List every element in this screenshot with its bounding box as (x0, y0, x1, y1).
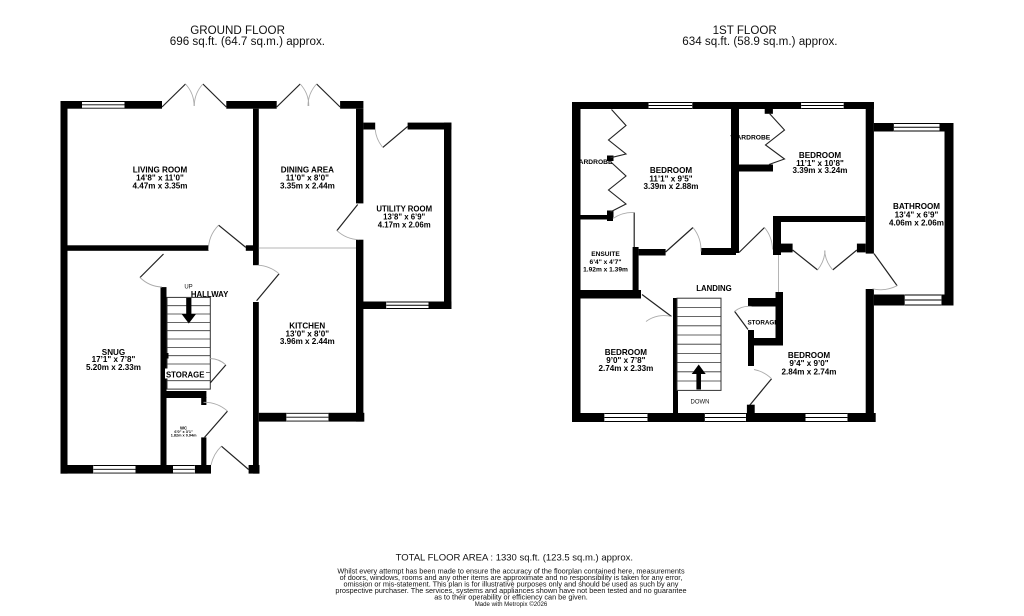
svg-text:3.39m x 3.24m: 3.39m x 3.24m (793, 166, 848, 175)
svg-text:1.82m x 0.94m: 1.82m x 0.94m (171, 434, 197, 438)
svg-text:ENSUITE: ENSUITE (591, 251, 620, 258)
svg-text:STORAGE: STORAGE (166, 370, 204, 379)
svg-text:5.20m x 2.33m: 5.20m x 2.33m (86, 363, 141, 372)
svg-text:696 sq.ft. (64.7 sq.m.) approx: 696 sq.ft. (64.7 sq.m.) approx. (170, 35, 325, 48)
svg-text:TOTAL FLOOR AREA : 1330 sq.ft.: TOTAL FLOOR AREA : 1330 sq.ft. (123.5 sq… (396, 553, 633, 564)
svg-text:2.84m x 2.74m: 2.84m x 2.74m (782, 367, 837, 376)
svg-text:3.96m x 2.44m: 3.96m x 2.44m (280, 337, 335, 346)
svg-text:4.17m x 2.06m: 4.17m x 2.06m (378, 220, 431, 229)
svg-text:WARDROBE: WARDROBE (731, 134, 771, 141)
svg-text:DOWN: DOWN (691, 400, 710, 406)
svg-text:3.35m x 2.44m: 3.35m x 2.44m (280, 181, 335, 190)
svg-text:634 sq.ft. (58.9 sq.m.) approx: 634 sq.ft. (58.9 sq.m.) approx. (682, 35, 837, 48)
svg-text:2.74m x 2.33m: 2.74m x 2.33m (598, 364, 653, 373)
svg-text:Made with Metropix ©2026: Made with Metropix ©2026 (475, 601, 548, 608)
svg-text:4.06m x 2.06m: 4.06m x 2.06m (889, 219, 944, 228)
svg-text:4.47m x 3.35m: 4.47m x 3.35m (133, 181, 188, 190)
svg-text:STORAGE: STORAGE (747, 320, 778, 327)
svg-text:WARDROBE: WARDROBE (573, 159, 613, 166)
svg-text:1.92m x 1.39m: 1.92m x 1.39m (583, 266, 628, 273)
svg-text:HALLWAY: HALLWAY (191, 290, 229, 299)
svg-text:3.39m x 2.88m: 3.39m x 2.88m (644, 182, 699, 191)
svg-text:LANDING: LANDING (696, 284, 732, 293)
svg-text:6’4" x 4’7": 6’4" x 4’7" (590, 259, 622, 266)
